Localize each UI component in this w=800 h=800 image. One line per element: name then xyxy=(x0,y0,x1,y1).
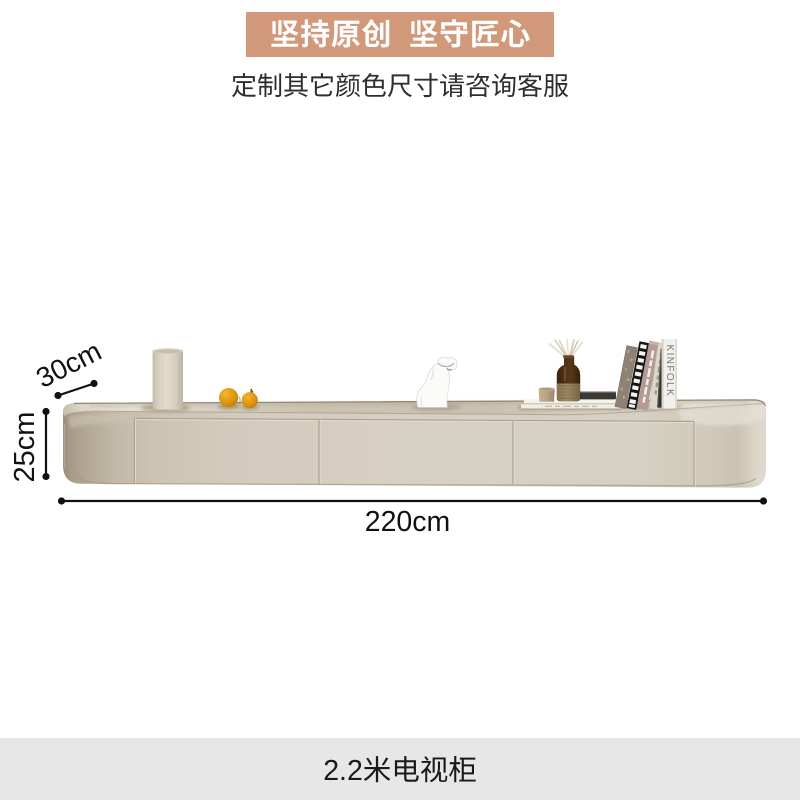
svg-text:2.2: 2.2 xyxy=(323,755,363,787)
svg-text:220cm: 220cm xyxy=(365,506,451,538)
svg-text:KINFOLK: KINFOLK xyxy=(664,345,675,398)
svg-text:25cm: 25cm xyxy=(9,412,41,483)
